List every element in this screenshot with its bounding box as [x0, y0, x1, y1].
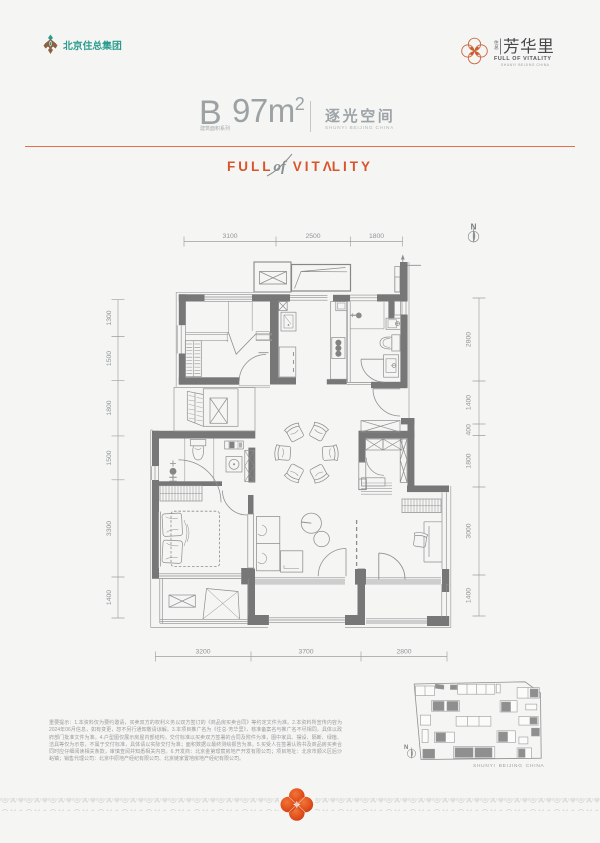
svg-text:1400: 1400 [106, 590, 113, 605]
svg-text:2800: 2800 [466, 332, 473, 347]
svg-text:1800: 1800 [106, 400, 113, 415]
svg-text:总: 总 [494, 44, 499, 50]
svg-text:3300: 3300 [106, 521, 113, 536]
svg-text:1800: 1800 [369, 233, 384, 240]
svg-text:3200: 3200 [195, 649, 210, 656]
svg-text:2500: 2500 [305, 233, 320, 240]
svg-text:1800: 1800 [466, 453, 473, 468]
svg-text:N: N [404, 745, 408, 751]
svg-text:N: N [471, 223, 477, 232]
svg-text:1500: 1500 [106, 450, 113, 465]
svg-text:2800: 2800 [396, 649, 411, 656]
svg-text:1400: 1400 [466, 395, 473, 410]
svg-text:3000: 3000 [466, 523, 473, 538]
svg-text:SHUNYI BEIJING CHINA: SHUNYI BEIJING CHINA [501, 63, 550, 67]
svg-text:1300: 1300 [106, 310, 113, 325]
svg-text:1500: 1500 [106, 351, 113, 366]
svg-text:1400: 1400 [466, 588, 473, 603]
svg-text:3700: 3700 [298, 649, 313, 656]
svg-text:FULL OF VITALITY: FULL OF VITALITY [494, 56, 552, 62]
svg-text:3100: 3100 [222, 233, 237, 240]
svg-text:400: 400 [466, 424, 473, 436]
svg-text:芳华里: 芳华里 [503, 37, 554, 56]
